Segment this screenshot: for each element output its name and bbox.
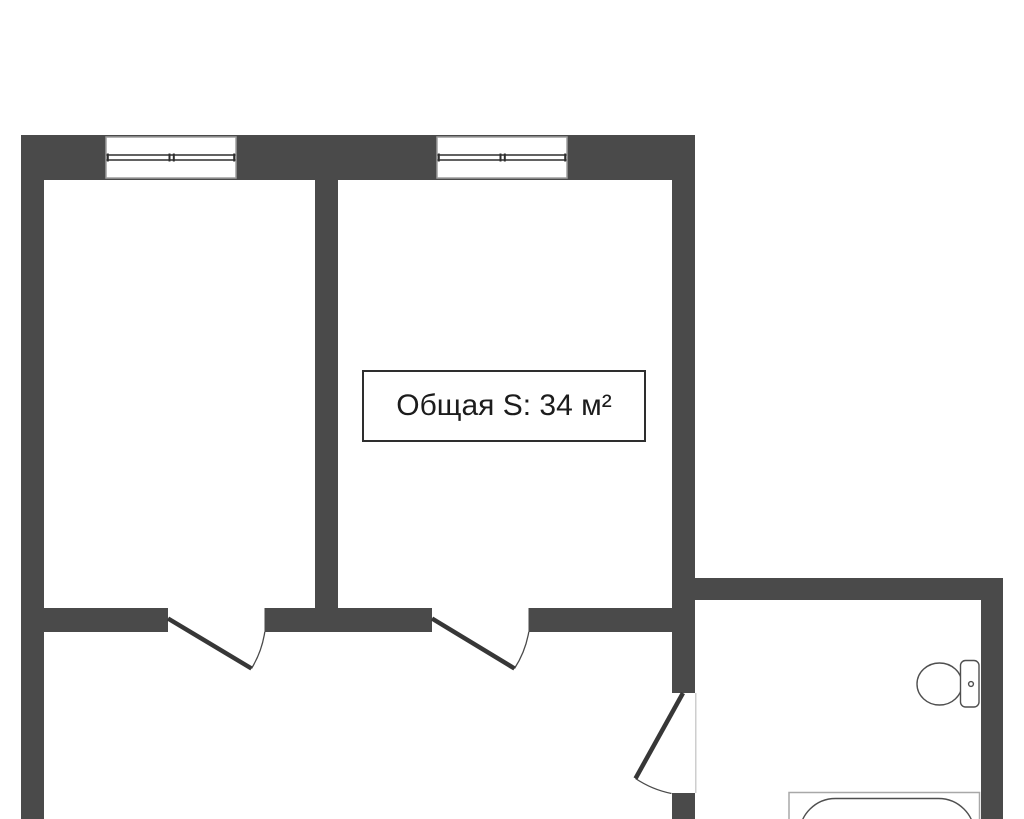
- doors: [168, 619, 696, 794]
- door-bathroom: [636, 693, 696, 794]
- door-bathroom-swing-arc: [636, 779, 672, 794]
- toilet-bowl: [917, 663, 962, 705]
- door-room1-leaf: [168, 619, 252, 669]
- door-room1-swing-arc: [252, 632, 265, 669]
- door-room2: [432, 619, 529, 669]
- wall-between-rooms: [315, 180, 338, 632]
- wall-corridor-segment-right: [529, 608, 696, 632]
- door-bathroom-leaf: [636, 693, 684, 779]
- door-room2-leaf: [432, 619, 515, 669]
- area-label: Общая S: 34 м²: [396, 389, 611, 423]
- bathtub: [789, 793, 980, 819]
- window-1: [106, 137, 236, 178]
- wall-bathroom-top: [695, 578, 1003, 600]
- toilet: [917, 661, 979, 708]
- floorplan-canvas: Общая S: 34 м²: [0, 0, 1024, 819]
- door-room1: [168, 619, 265, 669]
- wall-corridor-segment-left: [21, 608, 168, 632]
- walls: [21, 135, 1003, 819]
- door-room2-swing-arc: [515, 632, 529, 669]
- wall-corridor-segment-middle: [265, 608, 433, 632]
- window-1-frame: [106, 137, 236, 178]
- window-2-frame: [437, 137, 567, 178]
- toilet-flush-button: [969, 682, 974, 687]
- wall-left-exterior: [21, 135, 44, 819]
- area-label-box: Общая S: 34 м²: [362, 370, 646, 442]
- wall-bathroom-left-stub: [672, 793, 695, 819]
- bathtub-outer-rim: [789, 793, 980, 819]
- window-2: [437, 137, 567, 178]
- wall-bathroom-right: [981, 578, 1003, 819]
